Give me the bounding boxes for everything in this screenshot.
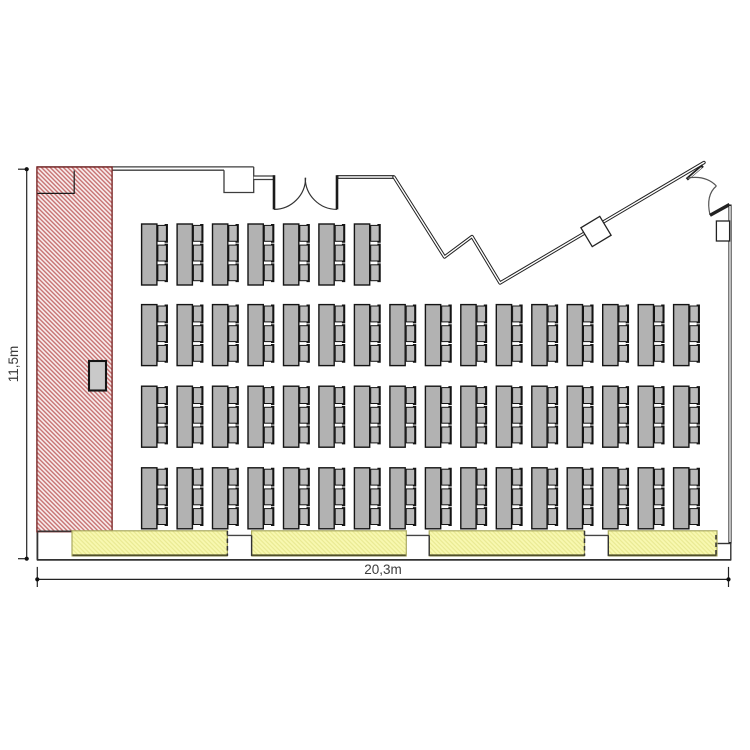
svg-text:20,3m: 20,3m: [364, 562, 402, 577]
svg-text:11,5m: 11,5m: [6, 346, 21, 383]
